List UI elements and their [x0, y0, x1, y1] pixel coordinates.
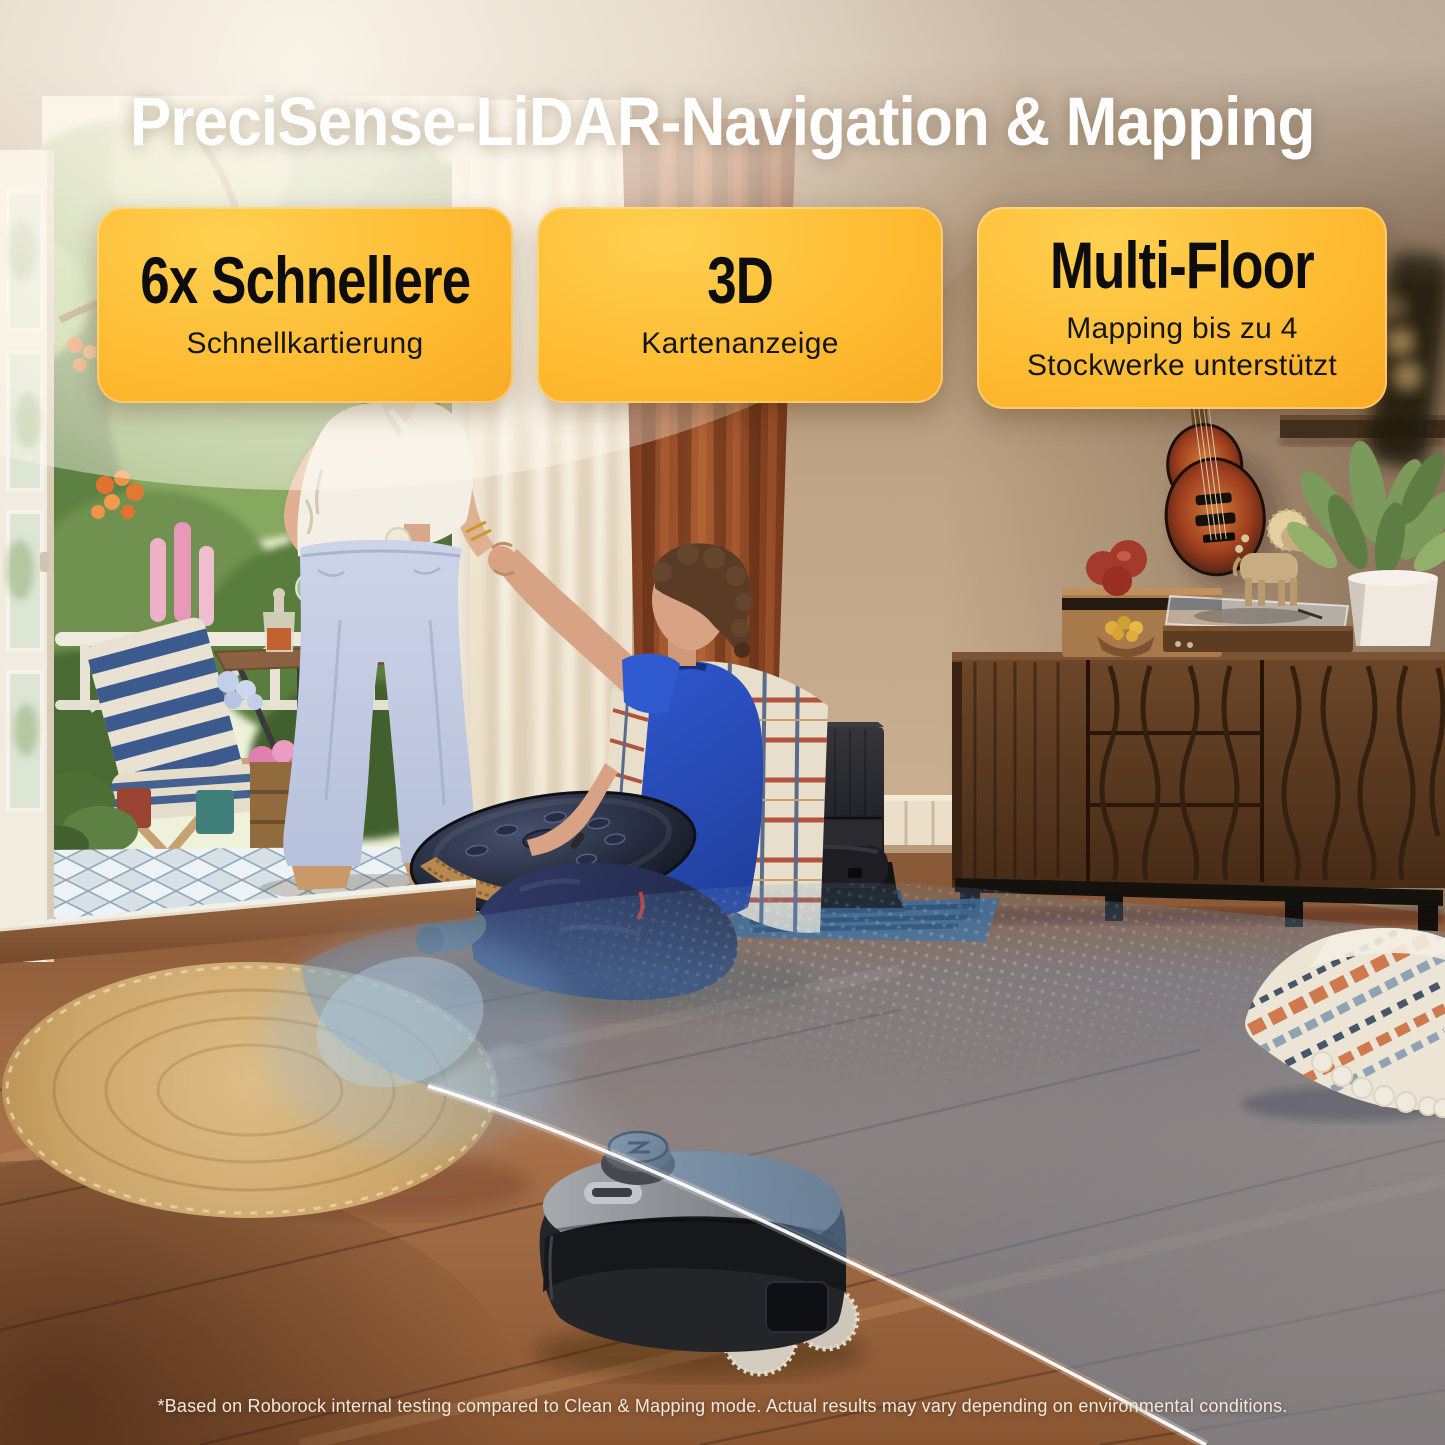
feature-card-3d: 3D Kartenanzeige: [537, 207, 943, 403]
robot-side-port: [766, 1282, 828, 1332]
feature-card-speed-subheading: Schnellkartierung: [187, 326, 424, 363]
feature-card-3d-subheading: Kartenanzeige: [641, 326, 838, 363]
legal-footnote: *Based on Roborock internal testing comp…: [0, 1396, 1445, 1417]
feature-card-speed: 6x Schnellere Schnellkartierung: [97, 207, 513, 403]
feature-card-multifloor-subheading: Mapping bis zu 4 Stockwerke unterstützt: [1004, 311, 1360, 384]
held-hands: [488, 546, 516, 574]
feature-card-multifloor: Multi-Floor Mapping bis zu 4 Stockwerke …: [977, 207, 1387, 409]
sideboard: [952, 652, 1445, 931]
teal-plant-pot: [196, 790, 234, 834]
promo-image: PreciSense-LiDAR-Navigation & Mapping 6x…: [0, 0, 1445, 1445]
feature-card-3d-heading: 3D: [707, 247, 773, 313]
door-handle: [40, 552, 49, 572]
feature-card-multifloor-heading: Multi-Floor: [1050, 232, 1314, 298]
woman-shoe-left: [292, 866, 352, 890]
open-french-door: [0, 150, 54, 962]
feature-card-speed-heading: 6x Schnellere: [140, 247, 470, 313]
lidar-turret: [601, 1132, 675, 1185]
